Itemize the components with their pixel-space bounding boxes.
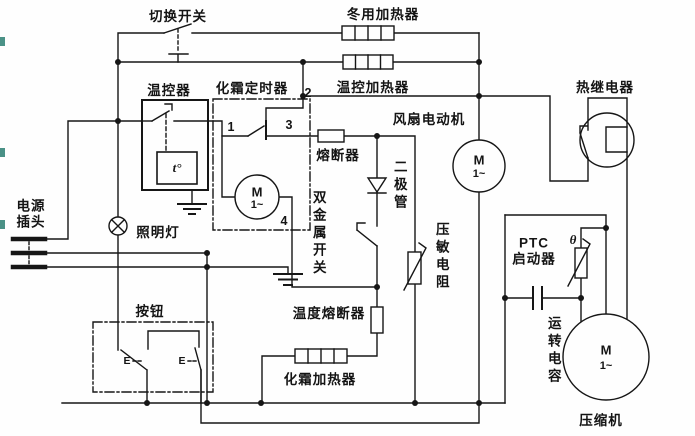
label-thermo-heater: 温控加热器 [337,76,410,96]
label-ptc-starter: PTC 启动器 [512,235,556,266]
fan-motor-phase: 1~ [473,168,486,180]
button-contact-left: E [123,355,130,367]
label-ptc-line1: PTC [512,235,556,251]
label-fan-motor: 风扇电动机 [393,108,466,128]
winter-heater-symbol [342,26,394,40]
label-thermal-relay: 热继电器 [576,76,634,96]
bimetal-switch-symbol [357,223,377,246]
label-thermostat: 温控器 [147,79,191,99]
junction-dots [115,59,609,406]
compressor-phase: 1~ [600,360,613,372]
label-winter-heater: 冬用加热器 [347,3,420,23]
power-feed-wire [45,121,142,239]
timer-terminal-1: 1 [228,120,235,134]
edge-marks [0,37,5,229]
label-run-capacitor: 运转电容 [546,316,560,386]
diode-symbol [368,178,386,193]
thermal-relay-wire [479,96,627,319]
label-thermal-fuse: 温度熔断器 [293,302,366,322]
label-bimetal-switch: 双金属开关 [311,190,325,278]
thermostat-temp-symbol: t° [173,160,182,176]
timer-motor-phase: 1~ [251,199,264,211]
label-button: 按钮 [136,300,165,320]
label-power-plug-line1: 电源 [17,198,46,214]
label-fuse: 熔断器 [316,144,360,164]
timer-terminal-4: 4 [281,214,288,228]
label-defrost-heater: 化霜加热器 [284,368,357,388]
fuse-symbol [318,130,344,142]
button-contact-right: E [178,355,185,367]
wiring-diagram: 切换开关 冬用加热器 温控加热器 温控器 化霜定时器 熔断器 风扇电动机 热继电… [0,0,695,436]
thermostat-box [142,100,248,190]
lamp-symbol [109,217,127,235]
defrost-heater-symbol [295,349,347,363]
timer-terminal-3: 3 [286,118,293,132]
label-power-plug-line2: 插头 [17,214,46,230]
thermo-heater-symbol [343,55,393,69]
label-varistor: 压敏电阻 [434,222,448,292]
power-plug-symbol [13,239,288,273]
thermal-relay-symbol [580,113,634,167]
timer-motor-m: M [252,185,263,200]
label-diode: 二极管 [392,160,406,213]
ground-symbol-plug [274,274,302,285]
label-power-plug: 电源 插头 [17,198,46,229]
thermal-fuse-symbol [371,307,383,333]
label-lamp: 照明灯 [136,221,180,241]
label-ptc-line2: 启动器 [512,251,556,267]
label-defrost-timer: 化霜定时器 [216,77,289,97]
compressor-m: M [601,343,612,358]
changeover-switch-symbol [164,24,191,62]
timer-terminal-2: 2 [305,86,312,100]
fan-motor-m: M [474,153,485,168]
theta-symbol: θ [570,232,577,248]
button-box [93,322,213,403]
label-changeover-switch: 切换开关 [149,5,207,25]
ground-symbol-thermostat [178,190,206,214]
label-compressor: 压缩机 [579,409,623,429]
run-capacitor-symbol [505,287,581,309]
